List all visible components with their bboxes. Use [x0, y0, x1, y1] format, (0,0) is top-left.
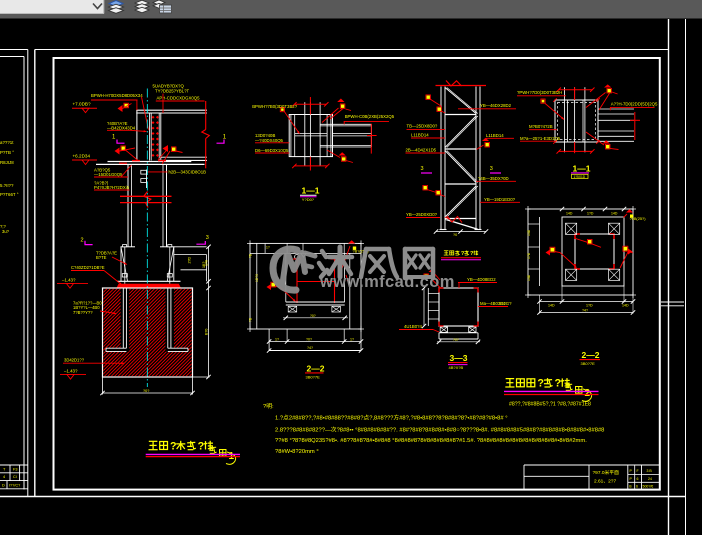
svg-text:?: ? — [554, 378, 561, 390]
svg-text:1?D: 1?D — [587, 212, 594, 216]
svg-text:?4?: ?4? — [307, 346, 313, 350]
svg-text:2.8???8#8#8#82??—次?8#8•• °8#8#: 2.8???8#8#8#82??—次?8#8•• °8#8#8#8#8#??. … — [275, 426, 604, 434]
svg-text:?97.0米平面: ?97.0米平面 — [593, 469, 620, 476]
svg-text:14D: 14D — [566, 212, 573, 216]
svg-text:YB—4D08ED2: YB—4D08ED2 — [467, 277, 496, 282]
svg-text:14D: 14D — [611, 212, 618, 216]
svg-text:P4?XJB?H?2DXi5: P4?XJB?H?2DXi5 — [94, 185, 130, 190]
svg-text:14D: 14D — [548, 303, 555, 307]
svg-text:6: 6 — [636, 485, 638, 489]
svg-text:?0: ?0 — [453, 233, 457, 237]
svg-text:1?0: 1?0 — [204, 260, 208, 266]
svg-text:1—1: 1—1 — [302, 186, 320, 196]
svg-text:2: 2 — [81, 238, 84, 244]
svg-text:3: 3 — [490, 166, 493, 172]
svg-text:D6—69D3X10Q5: D6—69D3X10Q5 — [255, 148, 289, 153]
svg-text:24: 24 — [648, 477, 652, 481]
svg-text:P?T66T °: P?T66T ° — [0, 192, 19, 197]
svg-text:3B0?7E: 3B0?7E — [581, 361, 596, 366]
svg-text:?: ? — [537, 378, 544, 390]
svg-text:BPWH-C0B(2XB(25X2Q5: BPWH-C0B(2XB(25X2Q5 — [345, 114, 395, 119]
svg-text:3 B: 3 B — [647, 469, 653, 473]
svg-text:?B: ?B — [249, 253, 253, 258]
svg-text:TY?DB25?YBL?T: TY?DB25?YBL?T — [155, 88, 190, 93]
svg-text:CI: CI — [13, 475, 17, 479]
svg-text:?: ? — [198, 440, 205, 452]
svg-text:?4?: ?4? — [582, 308, 588, 312]
svg-text:F: F — [637, 469, 639, 473]
svg-text:6: 6 — [637, 477, 639, 481]
svg-text:2—2: 2—2 — [582, 350, 600, 360]
svg-text:1?5X1D: 1?5X1D — [574, 175, 586, 179]
svg-text:YB—19D1ED0?: YB—19D1ED0? — [484, 197, 516, 202]
svg-text:#8??,?#8#8B#5?,?1 ?#8,?#87#1E8: #8??,?#8#8B#5?,?1 ?#8,?#87#1E8 — [509, 402, 591, 408]
svg-text:2?D: 2?D — [188, 257, 192, 264]
svg-text:14D: 14D — [527, 229, 531, 236]
svg-text:1?D: 1?D — [527, 252, 531, 259]
svg-text:1?D: 1?D — [586, 303, 593, 307]
svg-text:?: ? — [461, 251, 465, 257]
svg-text:2—2: 2—2 — [307, 363, 325, 373]
svg-text:TB—25DX8D0?: TB—25DX8D0? — [407, 124, 438, 129]
svg-text:1D?0: 1D?0 — [255, 274, 259, 282]
svg-text:?0?: ?0? — [143, 389, 149, 393]
svg-text:2.61、2?7: 2.61、2?7 — [594, 478, 616, 484]
svg-text:Y?D0?: Y?D0? — [302, 197, 315, 202]
svg-text:1?: 1? — [350, 338, 354, 342]
svg-text:P?TB °: P?TB ° — [0, 150, 14, 155]
svg-text:1?: 1? — [275, 338, 279, 342]
svg-text:?PWH?7D0(3D0T3B2H: ?PWH?7D0(3D0T3B2H — [517, 90, 562, 95]
svg-text:?: ? — [170, 440, 177, 452]
svg-text:?0?: ?0? — [310, 314, 316, 318]
svg-text:F3: F3 — [13, 467, 17, 471]
svg-text:?4B—35DX?0D: ?4B—35DX?0D — [478, 176, 509, 181]
svg-text:1.?点2#8#8??,?#8•#8#88??#8#8?点?: 1.?点2#8#8??,?#8•#8#88??#8#8?点?,8#8???方#8… — [275, 414, 508, 422]
svg-text:I??/C?: I??/C? — [9, 483, 20, 487]
svg-text:C?40ZD2?1DB?E: C?40ZD2?1DB?E — [71, 265, 105, 270]
svg-text:?明:: ?明: — [263, 403, 274, 410]
svg-text:YB—25D0XD0?: YB—25D0XD0? — [406, 212, 438, 217]
svg-text:BPWH-H70DX5D8D05X34: BPWH-H70DX5D8D05X34 — [91, 93, 143, 98]
svg-text:4U1B0?4: 4U1B0?4 — [404, 324, 423, 329]
svg-text:—B42DX43D4: —B42DX43D4 — [107, 125, 136, 130]
svg-text:–1.43?: –1.43? — [62, 278, 76, 283]
svg-text:1?: 1? — [266, 246, 270, 250]
svg-text:B?0: B?0 — [204, 329, 208, 335]
svg-text:1—1: 1—1 — [573, 163, 591, 173]
svg-text:—15D01G0Q5: —15D01G0Q5 — [94, 172, 123, 177]
svg-text:7?B??Y??: 7?B??Y?? — [73, 310, 93, 315]
svg-text:14D: 14D — [622, 303, 629, 307]
svg-text:–1.43?: –1.43? — [64, 368, 78, 373]
svg-text:R8JIJ8: R8JIJ8 — [0, 160, 14, 165]
svg-text:BPWH?7B0(3D0T3B2?: BPWH?7B0(3D0T3B2? — [252, 104, 298, 109]
svg-text:h2B—343CID8O1B: h2B—343CID8O1B — [169, 170, 207, 175]
svg-text:+7.0DB?: +7.0DB? — [73, 102, 91, 107]
svg-text:?B: ?B — [249, 317, 253, 322]
svg-text:M?B0?4?2B: M?B0?4?2B — [529, 124, 553, 129]
svg-text:3—3: 3—3 — [450, 353, 468, 363]
svg-text:3B0?7E: 3B0?7E — [306, 374, 321, 379]
svg-text:3: 3 — [421, 166, 424, 172]
svg-text:—?40DX40Q5: —?40DX40Q5 — [255, 138, 284, 143]
svg-text:A??H-7D0(2DD(5D(2Q5: A??H-7D0(2DD(5D(2Q5 — [611, 102, 658, 107]
svg-text:www.mfcad.com: www.mfcad.com — [319, 273, 455, 291]
svg-text:+6.2D34: +6.2D34 — [73, 154, 91, 159]
svg-text:500?/€: 500?/€ — [643, 485, 654, 489]
svg-text:YB—46DX28D2: YB—46DX28D2 — [480, 103, 512, 108]
svg-text:4: 4 — [3, 475, 5, 479]
svg-text:3u?: 3u? — [2, 229, 10, 234]
svg-text:2B—4D42X1D5: 2B—4D42X1D5 — [406, 148, 437, 153]
svg-text:L11BD14: L11BD14 — [486, 133, 504, 138]
svg-text:a???1t: a???1t — [0, 140, 14, 145]
svg-text:L11BD14: L11BD14 — [411, 133, 429, 138]
svg-text:14D: 14D — [527, 274, 531, 281]
svg-text:B?TE: B?TE — [96, 255, 107, 260]
svg-text:?0?: ?0? — [453, 338, 459, 342]
svg-text:D: D — [2, 483, 5, 487]
svg-text:4B?X?B: 4B?X?B — [449, 365, 464, 370]
svg-text:3D42D1??: 3D42D1?? — [64, 357, 85, 362]
svg-text:M?a—25?1-E3D1Q5: M?a—25?1-E3D1Q5 — [520, 136, 561, 141]
svg-text:Ma—4B03D2G?: Ma—4B03D2G? — [480, 301, 512, 306]
svg-text:?0?: ?0? — [306, 338, 312, 342]
svg-text:3: 3 — [206, 235, 209, 241]
svg-text:??#8 °?8?8#8Q235?#8•. #8??8#8?: ??#8 °?8?8#8Q235?#8•. #8??8#8?8#•8#8#8 °… — [275, 438, 587, 444]
svg-text:?8#W•8?20mm °: ?8#W•8?20mm ° — [275, 449, 319, 455]
svg-text:5.?II??: 5.?II?? — [0, 183, 14, 188]
